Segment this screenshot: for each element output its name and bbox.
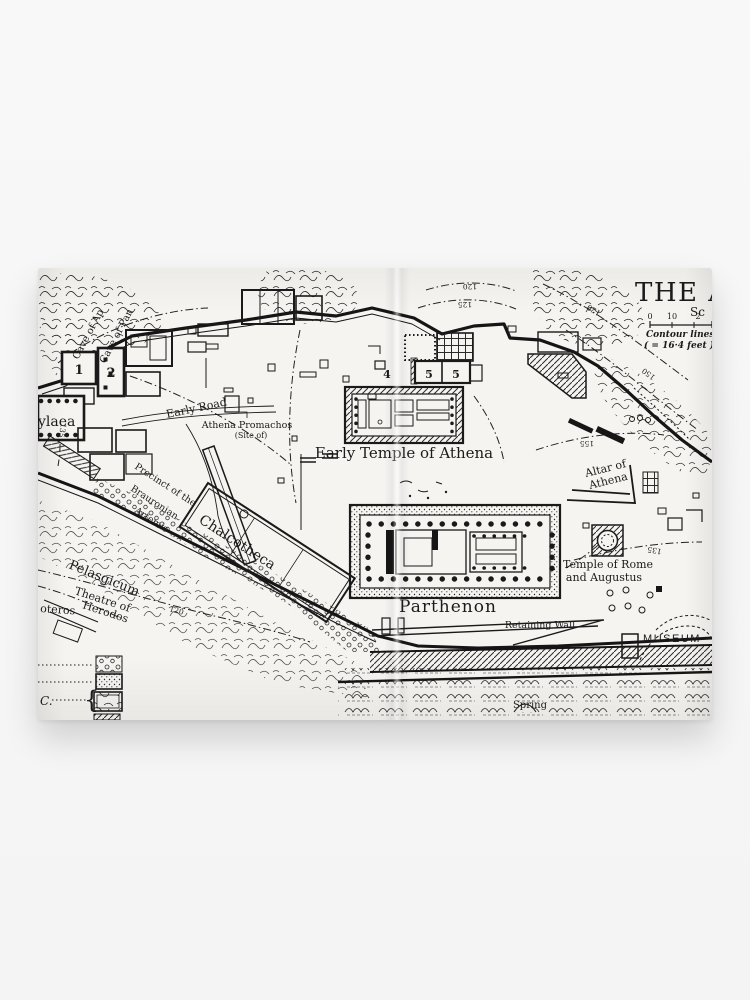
contour-label-135-east: 135: [647, 545, 663, 556]
legend-swatch-rock: [96, 656, 122, 672]
contour-label-125-top: 125: [458, 300, 473, 309]
label-parthenon: Parthenon: [399, 597, 497, 617]
scale-tick-20: 2: [695, 312, 700, 321]
legend-swatch-hatch: [94, 714, 120, 720]
legend-swatch-stipple: [96, 674, 122, 689]
product-photo-background: THE A Sc 0 10 2 Contour lines ( = 16·4 f…: [0, 0, 750, 1000]
parthenon-plan: [350, 505, 560, 598]
label-oteros: oteros: [40, 602, 76, 617]
legend-brace: {: [84, 686, 99, 714]
contour-note-2: ( = 16·4 feet ): [644, 340, 712, 351]
acropolis-map: THE A Sc 0 10 2 Contour lines ( = 16·4 f…: [38, 268, 712, 720]
label-temple-of-rome: Temple of Rome: [563, 558, 653, 571]
contour-label-120-top: 120: [463, 282, 478, 291]
journal-cover-photo[interactable]: THE A Sc 0 10 2 Contour lines ( = 16·4 f…: [38, 268, 712, 720]
label-building-5b: 5: [452, 368, 460, 381]
northeast-building: [528, 354, 586, 398]
label-retaining-wall: Retaining Wall: [505, 620, 575, 631]
scale-bar: [650, 321, 712, 328]
label-spring: Spring: [513, 700, 548, 711]
label-building-1: 1: [74, 363, 83, 378]
label-museum: MUSEUM: [643, 633, 701, 645]
label-legend-c: C.: [40, 694, 53, 708]
early-temple-of-athena: [345, 387, 463, 443]
temple-of-rome-structure: [592, 510, 702, 556]
scale-tick-0: 0: [647, 312, 652, 321]
label-site-of: (Site of): [235, 431, 268, 440]
label-early-temple: Early Temple of Athena: [315, 444, 493, 462]
scale-tick-10: 10: [667, 312, 677, 321]
contour-note-1: Contour lines: [646, 330, 712, 340]
label-athena-promachos: Athena Promachos: [201, 420, 293, 431]
label-building-4: 4: [383, 368, 391, 381]
label-and-augustus: and Augustus: [566, 571, 642, 584]
map-title: THE A: [635, 278, 712, 308]
contour-label-155-mid: 155: [580, 439, 595, 448]
map-legend: [38, 656, 122, 720]
label-building-2: 2: [106, 366, 115, 381]
label-propylaea: ylaea: [38, 414, 75, 430]
label-building-5a: 5: [425, 368, 433, 381]
label-early-road: Early Road: [165, 395, 228, 421]
